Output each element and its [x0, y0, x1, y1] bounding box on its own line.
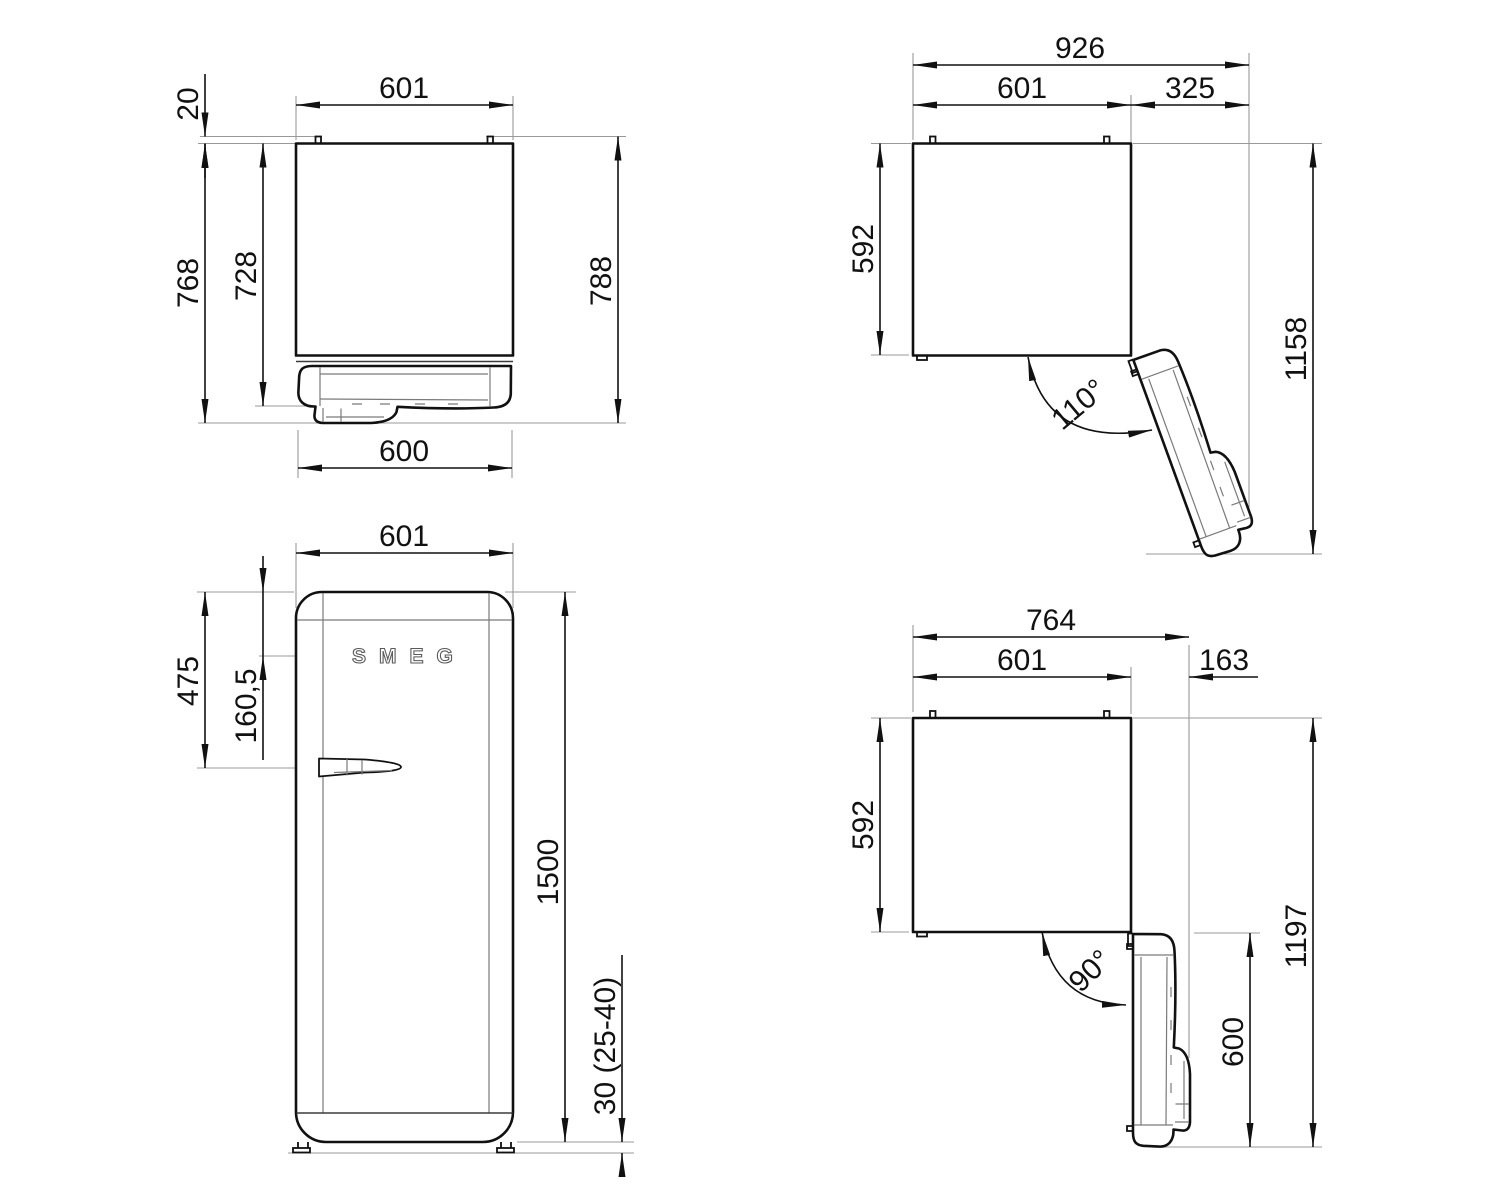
drawing-canvas: 601 20 728 768 788 600	[0, 0, 1500, 1200]
dim-plan-closed-body-width: 601	[379, 72, 429, 105]
dim-open110-door-clearance: 325	[1165, 72, 1215, 105]
dim-front-logo-offset: 160,5	[230, 668, 263, 743]
dim-open90-depth-open: 1197	[1280, 904, 1313, 969]
dim-plan-closed-depth-total: 788	[585, 256, 618, 306]
dim-front-handle-offset: 475	[172, 656, 205, 706]
cabinet-body-plan	[913, 711, 1131, 937]
cabinet-front: SMEG	[293, 592, 514, 1153]
dim-plan-closed-depth-door: 728	[230, 251, 263, 301]
dim-opening-angle-90: 90°	[1063, 944, 1119, 999]
dim-open110-depth-open: 1158	[1280, 317, 1313, 382]
cabinet-body-plan	[913, 137, 1131, 361]
dim-front-feet-height: 30 (25-40)	[589, 977, 622, 1115]
door-swing-arc: 90°	[1042, 932, 1126, 1005]
dim-front-height: 1500	[532, 839, 565, 906]
dim-open90-door-width: 600	[1217, 1017, 1250, 1067]
view-plan-door-closed: 601 20 728 768 788 600	[172, 72, 626, 478]
view-plan-door-open-90: 90° 764 601 163 592 1197 600	[847, 604, 1322, 1147]
dim-open110-body-depth: 592	[847, 224, 880, 274]
dim-open90-body-width: 601	[997, 644, 1047, 677]
door-open-110	[1128, 340, 1260, 562]
dim-open90-body-depth: 592	[847, 800, 880, 850]
cabinet-body-plan	[296, 137, 513, 362]
dim-open110-overall-width: 926	[1055, 32, 1105, 65]
dimension-drawing: 601 20 728 768 788 600	[0, 0, 1500, 1200]
dim-plan-closed-door-width: 600	[379, 435, 429, 468]
brand-logo: SMEG	[352, 645, 466, 668]
dim-open90-door-clearance: 163	[1199, 644, 1249, 677]
dim-plan-closed-pin-offset: 20	[172, 87, 205, 120]
door-swing-arc: 110°	[1028, 357, 1152, 437]
view-plan-door-open-110: 110° 926 601 325 592 1158	[847, 32, 1322, 562]
view-front: SMEG 601 475 160,5 1500 30 (25-40)	[172, 520, 634, 1176]
dim-open90-overall-width: 764	[1026, 604, 1076, 637]
door-closed	[298, 366, 511, 423]
dim-front-width: 601	[379, 520, 429, 553]
door-open-90	[1127, 934, 1190, 1147]
dim-plan-closed-depth-handle: 768	[172, 258, 205, 308]
dim-open110-body-width: 601	[997, 72, 1047, 105]
